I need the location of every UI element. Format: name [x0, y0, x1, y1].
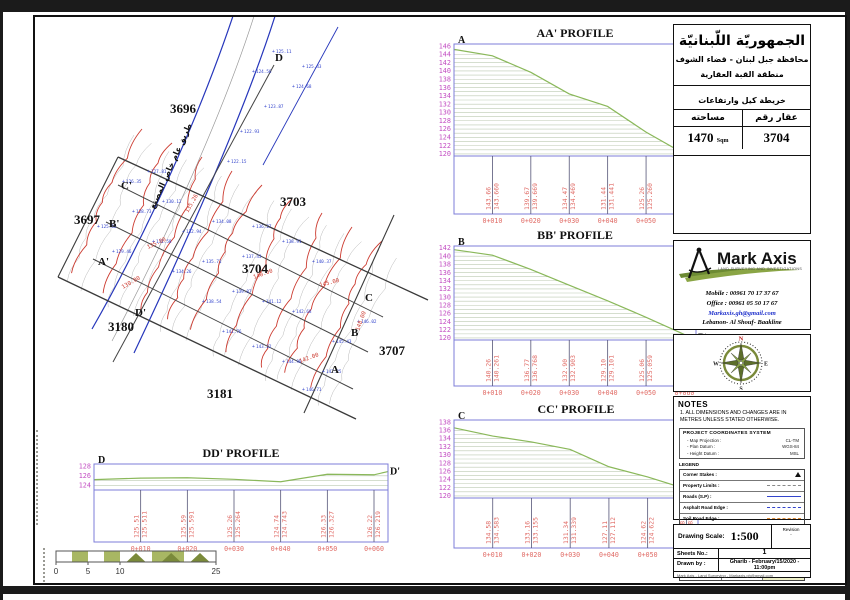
svg-text:135.26: 135.26 — [185, 193, 200, 214]
svg-text:0+050: 0+050 — [636, 217, 656, 225]
svg-text:129.101: 129.101 — [608, 355, 616, 382]
plot-number-3704: 3704 — [242, 261, 269, 276]
svg-text:122: 122 — [439, 326, 451, 334]
section-point-Ap: A' — [98, 256, 109, 268]
company-box: Mark Axis LAND SURVEYING AND INVESTIGATI… — [673, 240, 811, 330]
svg-text:131.339: 131.339 — [570, 517, 578, 544]
notes-box: NOTES 1. ALL DIMENSIONS AND CHANGES ARE … — [673, 396, 811, 520]
company-logo: Mark Axis LAND SURVEYING AND INVESTIGATI… — [677, 244, 807, 284]
notes-heading: NOTES — [674, 397, 810, 410]
profile-bb: 142140138136134132130128126124122120140.… — [428, 226, 706, 402]
drawing-sheet: طريق عام خاص المصنع+146.71+147.25+144.98… — [0, 0, 850, 600]
svg-text:134.583: 134.583 — [493, 517, 501, 544]
svg-text:139.67: 139.67 — [523, 187, 531, 210]
road-label: طريق عام خاص المصنع — [148, 122, 195, 211]
svg-text:123.87: 123.87 — [268, 104, 284, 110]
svg-text:138: 138 — [439, 418, 451, 426]
svg-text:0+060: 0+060 — [364, 545, 384, 553]
svg-text:+: + — [252, 224, 255, 230]
svg-text:+: + — [302, 64, 305, 70]
svg-text:124: 124 — [79, 481, 91, 489]
svg-text:124.74: 124.74 — [273, 515, 281, 538]
svg-text:0+030: 0+030 — [559, 389, 579, 397]
svg-text:+: + — [147, 169, 150, 175]
svg-text:120: 120 — [439, 492, 451, 500]
svg-text:136: 136 — [439, 426, 451, 434]
svg-text:+: + — [202, 299, 205, 305]
svg-text:136: 136 — [439, 269, 451, 277]
svg-text:134.08: 134.08 — [216, 219, 232, 225]
company-contact: Mobile : 00961 70 17 37 67 Office : 0096… — [674, 289, 810, 328]
svg-text:134.58: 134.58 — [485, 521, 493, 544]
svg-text:136.77: 136.77 — [523, 359, 531, 382]
svg-text:0+010: 0+010 — [483, 551, 503, 559]
legend-row: Roads (S.P) : — [680, 492, 804, 503]
svg-text:+: + — [222, 329, 225, 335]
svg-text:+: + — [292, 309, 295, 315]
svg-text:120: 120 — [439, 150, 451, 158]
section-point-A: A — [331, 364, 339, 376]
svg-text:Mark Axis: Mark Axis — [717, 249, 797, 268]
district-line: منطقة القبة العقارية — [674, 70, 810, 79]
svg-text:130: 130 — [439, 293, 451, 301]
svg-text:+: + — [132, 209, 135, 215]
company-address: Lebanon- Al Shouf- Baakline — [674, 318, 810, 328]
svg-text:A: A — [458, 35, 466, 46]
plot-number-3181: 3181 — [207, 386, 233, 401]
svg-text:130: 130 — [439, 451, 451, 459]
svg-text:127.112: 127.112 — [609, 517, 617, 544]
sheets-value: 1 — [719, 549, 810, 558]
section-point-C: C — [365, 292, 373, 304]
svg-text:138.91: 138.91 — [286, 239, 302, 245]
svg-text:125.26: 125.26 — [638, 187, 646, 210]
svg-text:125.260: 125.260 — [646, 183, 654, 210]
svg-text:128.73: 128.73 — [136, 209, 152, 215]
svg-text:120: 120 — [439, 334, 451, 342]
svg-text:134: 134 — [439, 277, 451, 285]
svg-text:124.68: 124.68 — [296, 84, 312, 90]
plot-number-3703: 3703 — [280, 194, 307, 209]
svg-text:0+040: 0+040 — [598, 217, 618, 225]
svg-text:130.12: 130.12 — [166, 199, 182, 205]
svg-text:128: 128 — [79, 463, 91, 471]
svg-text:137.43: 137.43 — [246, 254, 262, 260]
svg-text:+: + — [292, 84, 295, 90]
svg-text:0+030: 0+030 — [560, 551, 580, 559]
svg-text:+: + — [264, 104, 267, 110]
compass-w: W — [713, 362, 719, 368]
scale-label: Drawing Scale: — [678, 533, 725, 540]
svg-text:136.768: 136.768 — [531, 355, 539, 382]
svg-text:124.56: 124.56 — [256, 69, 272, 75]
country-title: الجمهوريّة اللّبنانيّة — [674, 25, 810, 49]
svg-text:142: 142 — [439, 59, 451, 67]
legend-title: LEGEND — [674, 461, 810, 468]
svg-text:133.16: 133.16 — [523, 521, 531, 544]
svg-text:126.327: 126.327 — [327, 511, 335, 538]
svg-text:124: 124 — [439, 318, 451, 326]
profile-aa: 1461441421401381361341321301281261241221… — [428, 22, 706, 225]
svg-text:132.903: 132.903 — [569, 355, 577, 382]
svg-text:126: 126 — [439, 468, 451, 476]
revision-cell: Revision - — [771, 525, 810, 548]
compass-n: N — [739, 336, 744, 343]
svg-text:125.06: 125.06 — [638, 359, 646, 382]
svg-text:+: + — [240, 129, 243, 135]
svg-text:+: + — [227, 159, 230, 165]
section-point-D: D — [275, 52, 283, 64]
company-mobile: Mobile : 00961 70 17 37 67 — [674, 289, 810, 299]
svg-text:CC' PROFILE: CC' PROFILE — [537, 402, 614, 416]
svg-text:145.00: 145.00 — [319, 278, 340, 289]
svg-text:125.511: 125.511 — [141, 511, 149, 538]
svg-text:124: 124 — [439, 476, 451, 484]
profile-cc: 138136134132130128126124122120134.58134.… — [428, 402, 706, 574]
svg-text:0+050: 0+050 — [636, 389, 656, 397]
plot-number-header: عقار رقم — [742, 110, 810, 127]
svg-text:D: D — [98, 455, 105, 466]
svg-text:126: 126 — [439, 125, 451, 133]
svg-text:135.71: 135.71 — [206, 259, 222, 265]
compass-s: S — [739, 387, 743, 391]
svg-text:+: + — [312, 259, 315, 265]
sheets-label: Sheets No.: — [674, 549, 719, 558]
note-1: 1. ALL DIMENSIONS AND CHANGES ARE IN MET… — [674, 410, 810, 426]
svg-text:DD' PROFILE: DD' PROFILE — [202, 448, 279, 460]
svg-text:129.10: 129.10 — [600, 359, 608, 382]
svg-text:130: 130 — [439, 109, 451, 117]
svg-text:+: + — [232, 289, 235, 295]
svg-text:143.66: 143.66 — [484, 187, 492, 210]
svg-text:140.261: 140.261 — [492, 355, 500, 382]
svg-text:132.94: 132.94 — [186, 229, 202, 235]
svg-text:138.54: 138.54 — [206, 299, 222, 305]
svg-text:140: 140 — [439, 67, 451, 75]
compass-box: N S W E — [673, 334, 811, 392]
legend-row: Asphalt Road Edge : — [680, 503, 804, 514]
coord-row: - Height Datum :MSL — [683, 449, 801, 456]
svg-text:131.34: 131.34 — [562, 521, 570, 544]
title-header-box: الجمهوريّة اللّبنانيّة محافظة جبل لبنان … — [673, 24, 811, 234]
area-header: مساحته — [674, 110, 742, 127]
plot-number-3696: 3696 — [170, 101, 197, 116]
section-point-Dp: D' — [135, 307, 146, 319]
svg-text:BB' PROFILE: BB' PROFILE — [537, 228, 613, 242]
plot-number-value: 3704 — [742, 127, 810, 149]
svg-text:141.12: 141.12 — [266, 299, 282, 305]
legend-row: Property Limits : — [680, 481, 804, 492]
svg-text:0+040: 0+040 — [271, 545, 291, 553]
titleblock-footer: Mark Axis - Land Surveying - Markaxis.gh… — [674, 572, 810, 579]
svg-text:0+050: 0+050 — [317, 545, 337, 553]
svg-text:0+020: 0+020 — [521, 217, 541, 225]
svg-text:132: 132 — [439, 443, 451, 451]
svg-text:125.43: 125.43 — [306, 64, 322, 70]
section-point-B: B — [351, 327, 359, 339]
corner-stake-icon — [795, 472, 801, 477]
svg-text:+: + — [182, 229, 185, 235]
section-point-Bp: B' — [109, 218, 119, 230]
svg-text:134.469: 134.469 — [569, 183, 577, 210]
title-block: Drawing Scale: 1:500 Revision - Sheets N… — [673, 524, 811, 578]
svg-text:5: 5 — [86, 567, 91, 576]
svg-text:B: B — [458, 237, 465, 248]
svg-text:132: 132 — [439, 285, 451, 293]
svg-text:0+020: 0+020 — [522, 551, 542, 559]
svg-text:+: + — [322, 369, 325, 375]
svg-text:0+040: 0+040 — [598, 389, 618, 397]
svg-text:0+030: 0+030 — [559, 217, 579, 225]
svg-text:+: + — [252, 344, 255, 350]
svg-text:143.660: 143.660 — [492, 183, 500, 210]
svg-text:+: + — [252, 69, 255, 75]
svg-text:128: 128 — [439, 117, 451, 125]
svg-text:132.90: 132.90 — [561, 359, 569, 382]
svg-text:LAND SURVEYING AND INVESTIGATI: LAND SURVEYING AND INVESTIGATIONS — [718, 267, 802, 271]
svg-text:124.743: 124.743 — [281, 511, 289, 538]
svg-text:128: 128 — [439, 301, 451, 309]
site-plan-map: طريق عام خاص المصنع+146.71+147.25+144.98… — [38, 17, 430, 461]
svg-text:136.27: 136.27 — [256, 224, 272, 230]
svg-text:+: + — [202, 259, 205, 265]
svg-text:131.441: 131.441 — [608, 183, 616, 210]
svg-text:+: + — [112, 249, 115, 255]
section-point-Cp: C' — [121, 180, 132, 192]
scan-edge-top — [0, 0, 850, 12]
compass-e: E — [764, 362, 768, 368]
svg-text:125.059: 125.059 — [646, 355, 654, 382]
svg-text:134.26: 134.26 — [176, 269, 192, 275]
svg-text:144: 144 — [439, 51, 451, 59]
svg-text:25: 25 — [212, 567, 221, 576]
svg-text:124.622: 124.622 — [648, 517, 656, 544]
svg-text:125.26: 125.26 — [226, 515, 234, 538]
governorate-line: محافظة جبل لبنان - قضاء الشوف — [674, 55, 810, 64]
svg-text:126.33: 126.33 — [319, 515, 327, 538]
svg-text:140.26: 140.26 — [484, 359, 492, 382]
svg-text:126: 126 — [79, 472, 91, 480]
legend-row: Corner Stakes : — [680, 470, 804, 481]
svg-text:+: + — [242, 254, 245, 260]
svg-text:140.37: 140.37 — [316, 259, 332, 265]
svg-text:125.591: 125.591 — [187, 511, 195, 538]
svg-text:+: + — [172, 269, 175, 275]
svg-text:+: + — [332, 339, 335, 345]
svg-text:132: 132 — [439, 100, 451, 108]
company-email[interactable]: Markaxis.gh@gmail.com — [674, 309, 810, 319]
svg-text:128: 128 — [439, 459, 451, 467]
svg-text:0+050: 0+050 — [638, 551, 658, 559]
svg-text:126.219: 126.219 — [374, 511, 382, 538]
legend-row: Soil Road Edge : — [680, 514, 804, 525]
svg-text:145.43: 145.43 — [336, 339, 352, 345]
svg-text:+: + — [302, 387, 305, 393]
coordinates-box: PROJECT COORDINATES SYSTEM - Map Project… — [679, 428, 805, 459]
svg-text:140: 140 — [439, 252, 451, 260]
svg-text:139.87: 139.87 — [236, 289, 252, 295]
plot-number-3180: 3180 — [108, 319, 134, 334]
svg-text:134: 134 — [439, 435, 451, 443]
svg-text:146.71: 146.71 — [306, 387, 322, 393]
svg-text:146: 146 — [439, 42, 451, 50]
svg-text:122: 122 — [439, 142, 451, 150]
svg-text:127.11: 127.11 — [601, 521, 609, 544]
svg-text:+: + — [282, 359, 285, 365]
svg-text:D': D' — [390, 467, 400, 478]
svg-text:126: 126 — [439, 310, 451, 318]
svg-text:134: 134 — [439, 92, 451, 100]
svg-text:122.93: 122.93 — [244, 129, 260, 135]
svg-text:0+040: 0+040 — [599, 551, 619, 559]
svg-text:0: 0 — [54, 567, 59, 576]
svg-text:122: 122 — [439, 484, 451, 492]
svg-text:10: 10 — [116, 567, 125, 576]
svg-text:0+010: 0+010 — [482, 217, 502, 225]
map-type-title: خريطة كيل وارتفاعات — [674, 92, 810, 109]
svg-text:133.155: 133.155 — [531, 517, 539, 544]
svg-text:142: 142 — [439, 244, 451, 252]
svg-text:129.46: 129.46 — [116, 249, 132, 255]
svg-text:142.00: 142.00 — [299, 352, 320, 365]
company-office: Office : 00961 05 50 17 67 — [674, 299, 810, 309]
svg-text:125.264: 125.264 — [234, 511, 242, 538]
svg-text:127.81: 127.81 — [151, 169, 167, 175]
svg-text:+: + — [282, 239, 285, 245]
svg-text:0+010: 0+010 — [482, 389, 502, 397]
svg-text:131.44: 131.44 — [600, 187, 608, 210]
svg-text:124: 124 — [439, 134, 451, 142]
drawn-by-label: Drawn by : — [674, 559, 719, 571]
svg-text:+: + — [162, 199, 165, 205]
svg-text:+: + — [212, 219, 215, 225]
compass-rose-icon: N S W E — [674, 335, 808, 390]
plot-info-table: مساحته عقار رقم 1470 Sqm 3704 — [674, 109, 810, 149]
plot-number-3707: 3707 — [379, 343, 406, 358]
svg-text:125.51: 125.51 — [133, 515, 141, 538]
graphic-scale-bar: 051025 — [46, 543, 258, 581]
area-value: 1470 Sqm — [674, 127, 742, 149]
svg-text:143.22: 143.22 — [256, 344, 272, 350]
svg-text:125.59: 125.59 — [179, 515, 187, 538]
svg-text:126.22: 126.22 — [366, 515, 374, 538]
svg-text:122.15: 122.15 — [231, 159, 247, 165]
scan-edge-bottom — [0, 586, 850, 594]
svg-text:136: 136 — [439, 84, 451, 92]
svg-text:138: 138 — [439, 75, 451, 83]
svg-text:142.68: 142.68 — [296, 309, 312, 315]
svg-text:134.47: 134.47 — [561, 187, 569, 210]
svg-text:C: C — [458, 411, 465, 422]
svg-text:138: 138 — [439, 261, 451, 269]
svg-text:AA' PROFILE: AA' PROFILE — [536, 26, 613, 40]
plot-number-3697: 3697 — [74, 212, 101, 227]
svg-text:139.669: 139.669 — [531, 183, 539, 210]
svg-text:141.76: 141.76 — [226, 329, 242, 335]
svg-text:0+020: 0+020 — [521, 389, 541, 397]
scan-edge-left — [0, 0, 3, 600]
drawn-by-value: Gharib - February/15/2020 - 11:00pm — [719, 559, 810, 571]
scale-value: 1:500 — [731, 529, 759, 544]
svg-text:124.62: 124.62 — [640, 521, 648, 544]
svg-text:+: + — [262, 299, 265, 305]
